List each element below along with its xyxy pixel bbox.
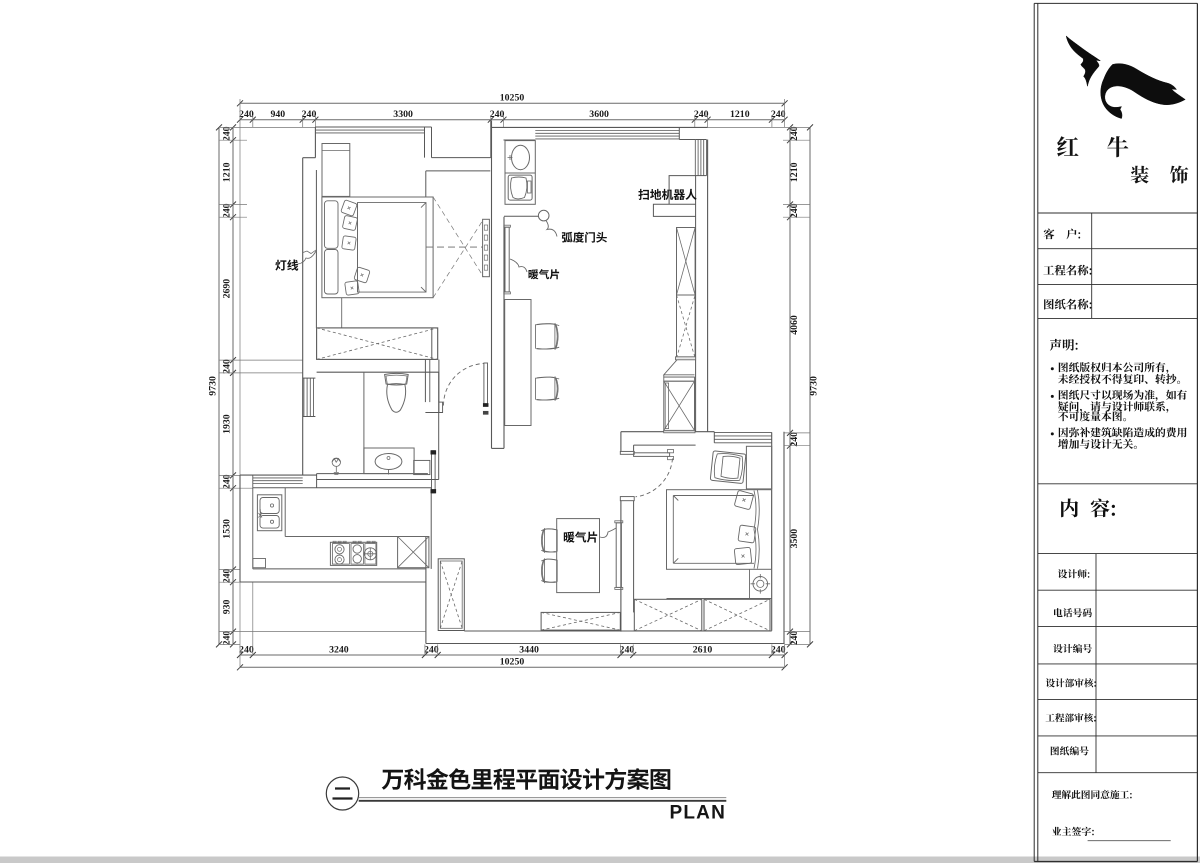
svg-text:3240: 3240	[329, 645, 349, 656]
svg-text:240: 240	[789, 432, 800, 447]
svg-text:240: 240	[771, 645, 786, 656]
svg-text:240: 240	[490, 109, 505, 120]
svg-text:240: 240	[424, 645, 439, 656]
svg-text:240: 240	[222, 474, 233, 489]
svg-text:3300: 3300	[393, 109, 413, 120]
svg-text:240: 240	[222, 359, 233, 374]
svg-text:240: 240	[789, 203, 800, 218]
svg-text:1930: 1930	[222, 414, 233, 434]
svg-text:1210: 1210	[730, 109, 750, 120]
svg-text:PLAN: PLAN	[670, 803, 727, 824]
svg-text:9730: 9730	[809, 376, 820, 396]
svg-text:240: 240	[771, 109, 786, 120]
svg-text:3500: 3500	[789, 529, 800, 549]
svg-text:9730: 9730	[208, 376, 219, 396]
svg-text:240: 240	[222, 631, 233, 646]
svg-text:240: 240	[620, 645, 635, 656]
svg-text:1530: 1530	[222, 519, 233, 539]
svg-text:10250: 10250	[500, 656, 525, 667]
svg-text:2690: 2690	[222, 279, 233, 299]
svg-text:240: 240	[239, 109, 254, 120]
svg-text:3440: 3440	[519, 645, 539, 656]
svg-text:240: 240	[239, 645, 254, 656]
svg-text:1210: 1210	[789, 162, 800, 182]
svg-text:3600: 3600	[589, 109, 609, 120]
svg-text:1210: 1210	[222, 162, 233, 182]
svg-text:240: 240	[222, 126, 233, 141]
svg-text:240: 240	[694, 109, 709, 120]
svg-text:240: 240	[789, 631, 800, 646]
svg-text:240: 240	[789, 126, 800, 141]
svg-text:10250: 10250	[500, 93, 525, 104]
svg-text:240: 240	[222, 568, 233, 583]
svg-text:240: 240	[222, 203, 233, 218]
svg-text:940: 940	[270, 109, 285, 120]
svg-text:4060: 4060	[789, 315, 800, 335]
svg-text:2610: 2610	[693, 645, 713, 656]
svg-text:240: 240	[302, 109, 317, 120]
svg-text:930: 930	[222, 599, 233, 614]
